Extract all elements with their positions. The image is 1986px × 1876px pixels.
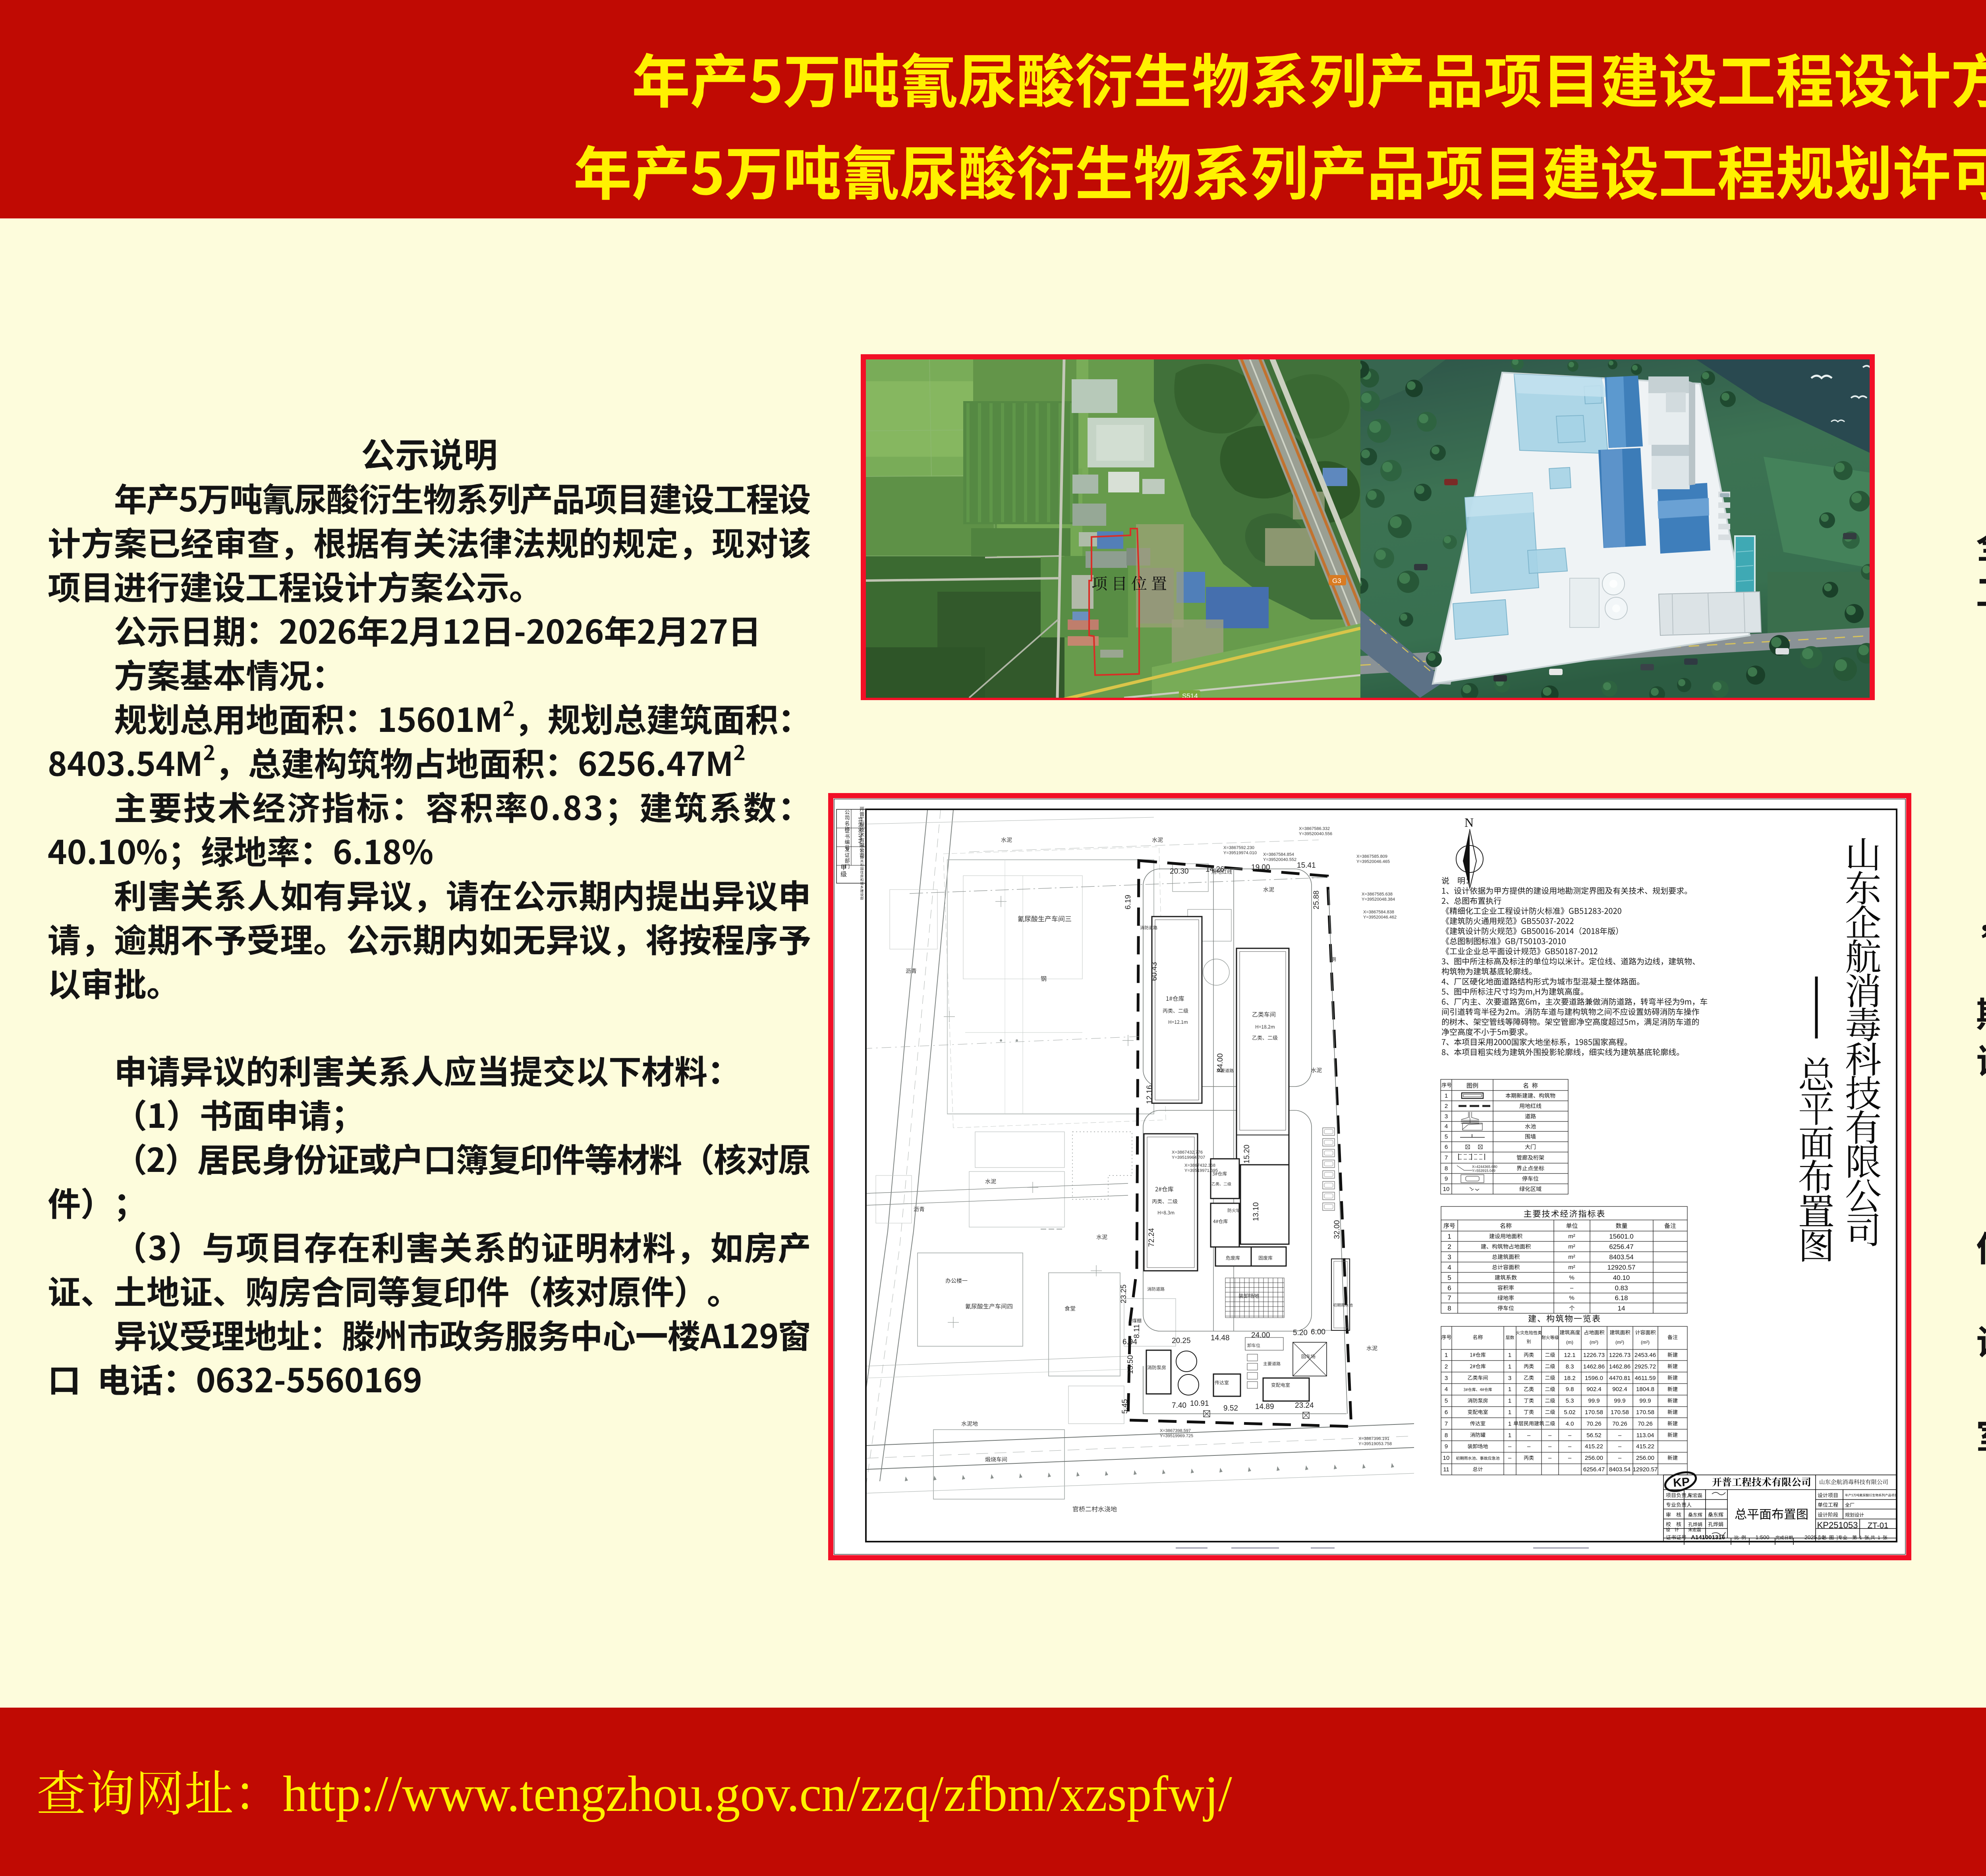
svg-text:8: 8 [1445, 1165, 1448, 1172]
svg-text:1: 1 [1508, 1421, 1511, 1427]
svg-text:Y=39520046.465: Y=39520046.465 [1356, 859, 1390, 864]
svg-text:–: – [1618, 1443, 1622, 1450]
svg-text:8: 8 [1447, 1305, 1451, 1312]
svg-text:–: – [1568, 1432, 1572, 1439]
svg-text:12920.57: 12920.57 [1633, 1466, 1658, 1473]
svg-text:5: 5 [1445, 1133, 1448, 1140]
svg-text:10.91: 10.91 [1190, 1399, 1209, 1408]
svg-text:%: % [1569, 1295, 1574, 1301]
svg-text:Y=39519971.695: Y=39519971.695 [1184, 1168, 1218, 1173]
svg-text:8.3: 8.3 [1566, 1363, 1574, 1370]
svg-text:3: 3 [1508, 1375, 1511, 1382]
svg-text:6256.47: 6256.47 [1583, 1466, 1605, 1473]
svg-text:–: – [1548, 1432, 1552, 1439]
svg-text:14: 14 [1618, 1305, 1625, 1312]
svg-text:Y=39519053.758: Y=39519053.758 [1358, 1442, 1392, 1446]
svg-text:6: 6 [1445, 1409, 1448, 1416]
svg-text:G3: G3 [1332, 577, 1341, 585]
svg-text:2: 2 [1447, 1243, 1451, 1251]
svg-text:m²: m² [1568, 1243, 1575, 1250]
svg-text:6256.47: 6256.47 [1609, 1243, 1633, 1251]
svg-text:6: 6 [1447, 1284, 1451, 1292]
svg-text:X=3867592.230: X=3867592.230 [1223, 845, 1254, 850]
svg-text:4: 4 [1445, 1386, 1448, 1393]
svg-text:6.00: 6.00 [1311, 1328, 1325, 1336]
svg-text:15.41: 15.41 [1297, 861, 1316, 870]
svg-text:–: – [1618, 1455, 1622, 1461]
svg-text:X=3867584.838: X=3867584.838 [1363, 910, 1394, 915]
svg-text:113.04: 113.04 [1636, 1432, 1654, 1439]
svg-text:9.52: 9.52 [1223, 1404, 1238, 1413]
svg-text:–: – [1548, 1455, 1552, 1461]
svg-text:5.45: 5.45 [1121, 1399, 1129, 1414]
svg-text:60.43: 60.43 [1150, 962, 1159, 981]
svg-text:1: 1 [1445, 1352, 1448, 1359]
svg-text:12920.57: 12920.57 [1607, 1264, 1636, 1271]
svg-text:2: 2 [1445, 1103, 1448, 1110]
svg-text:70.26: 70.26 [1638, 1421, 1653, 1427]
svg-text:2453.46: 2453.46 [1634, 1352, 1656, 1359]
svg-text:Y=39520048.384: Y=39520048.384 [1362, 897, 1395, 902]
svg-text:8403.54: 8403.54 [1609, 1253, 1633, 1261]
svg-text:11: 11 [1443, 1466, 1449, 1473]
svg-text:2: 2 [1445, 1363, 1448, 1370]
svg-text:7: 7 [1445, 1421, 1448, 1427]
svg-text:170.58: 170.58 [1636, 1409, 1654, 1416]
svg-text:1226.73: 1226.73 [1609, 1352, 1631, 1359]
svg-text:13.10: 13.10 [1252, 1202, 1260, 1221]
svg-text:20.25: 20.25 [1172, 1337, 1191, 1345]
svg-text:m²: m² [1568, 1233, 1575, 1240]
svg-text:902.4: 902.4 [1586, 1386, 1602, 1393]
svg-text:3: 3 [1447, 1253, 1451, 1261]
svg-text:5.3: 5.3 [1566, 1397, 1574, 1404]
svg-text:99.9: 99.9 [1588, 1397, 1600, 1404]
svg-text:Y=39519969.725: Y=39519969.725 [1160, 1434, 1193, 1438]
svg-text:70.26: 70.26 [1612, 1421, 1627, 1427]
svg-text:5: 5 [1445, 1397, 1448, 1404]
svg-text:5: 5 [1447, 1274, 1451, 1282]
svg-text:256.00: 256.00 [1585, 1455, 1603, 1461]
svg-text:1462.86: 1462.86 [1583, 1363, 1605, 1370]
svg-text:–: – [1618, 1432, 1622, 1439]
svg-text:6.19: 6.19 [1124, 895, 1132, 909]
svg-text:170.58: 170.58 [1585, 1409, 1603, 1416]
svg-text:15601.0: 15601.0 [1609, 1233, 1633, 1240]
svg-text:KP: KP [1673, 1475, 1690, 1490]
svg-text:m²: m² [1568, 1254, 1575, 1260]
svg-text:Y=39520046.462: Y=39520046.462 [1363, 915, 1397, 920]
svg-text:5.02: 5.02 [1564, 1409, 1575, 1416]
svg-text:56.52: 56.52 [1586, 1432, 1602, 1439]
svg-text:8403.54: 8403.54 [1609, 1466, 1631, 1473]
svg-text:23.25: 23.25 [1120, 1284, 1128, 1303]
svg-text:–: – [1508, 1443, 1512, 1450]
svg-text:X=3867432.368: X=3867432.368 [1184, 1163, 1215, 1168]
svg-text:14.48: 14.48 [1211, 1334, 1230, 1342]
svg-text:X=3867585.809: X=3867585.809 [1356, 854, 1387, 859]
svg-text:9: 9 [1445, 1443, 1448, 1450]
svg-text:–: – [1568, 1443, 1572, 1450]
svg-text:8.11: 8.11 [1133, 1324, 1141, 1338]
svg-text:3: 3 [1445, 1375, 1448, 1382]
svg-text:–: – [1527, 1443, 1531, 1450]
svg-text:1: 1 [1508, 1386, 1511, 1393]
svg-text:X=3867584.854: X=3867584.854 [1263, 852, 1294, 857]
svg-text:0.83: 0.83 [1615, 1284, 1628, 1292]
svg-text:Y=39519974.010: Y=39519974.010 [1223, 851, 1257, 855]
svg-text:9: 9 [1445, 1175, 1448, 1182]
svg-text:18.2: 18.2 [1564, 1375, 1575, 1382]
svg-text:256.00: 256.00 [1636, 1455, 1654, 1461]
svg-text:–: – [1527, 1432, 1531, 1439]
svg-text:4611.59: 4611.59 [1634, 1375, 1656, 1382]
svg-text:Y=39520040.552: Y=39520040.552 [1263, 857, 1296, 862]
svg-text:2025.10: 2025.10 [1804, 1534, 1825, 1540]
svg-text:–: – [1570, 1285, 1574, 1291]
svg-text:12.1: 12.1 [1564, 1352, 1575, 1359]
svg-text:72.24: 72.24 [1148, 1228, 1156, 1247]
svg-text:X=3867432.776: X=3867432.776 [1172, 1150, 1203, 1155]
svg-text:99.9: 99.9 [1639, 1397, 1651, 1404]
svg-text:Y=39520040.556: Y=39520040.556 [1299, 832, 1332, 836]
svg-text:14.89: 14.89 [1255, 1403, 1274, 1411]
svg-text:A141001316: A141001316 [1691, 1534, 1725, 1541]
svg-text:10: 10 [1443, 1455, 1450, 1461]
svg-text:1: 1 [1508, 1352, 1511, 1359]
svg-text:4: 4 [1447, 1264, 1451, 1271]
svg-text:1462.86: 1462.86 [1609, 1363, 1631, 1370]
svg-text:1804.8: 1804.8 [1636, 1386, 1654, 1393]
svg-text:7.40: 7.40 [1172, 1401, 1186, 1410]
svg-text:Y=553915.049: Y=553915.049 [1472, 1169, 1495, 1173]
svg-text:32.00: 32.00 [1333, 1220, 1341, 1239]
svg-text:%: % [1569, 1274, 1574, 1281]
svg-text:9.8: 9.8 [1566, 1386, 1574, 1393]
svg-text:1: 1 [1447, 1233, 1451, 1240]
svg-text:1: 1 [1508, 1397, 1511, 1404]
svg-text:170.58: 170.58 [1611, 1409, 1629, 1416]
svg-text:(m²): (m²) [1641, 1339, 1650, 1345]
svg-text:902.4: 902.4 [1612, 1386, 1627, 1393]
svg-text:19.00: 19.00 [1251, 863, 1270, 872]
svg-text:(m²): (m²) [1590, 1339, 1598, 1345]
svg-text:13.50: 13.50 [1126, 1355, 1135, 1374]
svg-text:415.22: 415.22 [1636, 1443, 1654, 1450]
svg-text:99.9: 99.9 [1614, 1397, 1625, 1404]
svg-text:4.0: 4.0 [1566, 1421, 1574, 1427]
svg-text:–: – [1508, 1455, 1512, 1461]
svg-text:1: 1 [1508, 1409, 1511, 1416]
svg-text:KP251053: KP251053 [1817, 1520, 1858, 1530]
svg-text:6: 6 [1445, 1144, 1448, 1150]
svg-text:1: 1 [1508, 1363, 1511, 1370]
svg-text:(m): (m) [1566, 1339, 1573, 1345]
svg-text:ZT-01: ZT-01 [1868, 1521, 1888, 1530]
svg-text:7: 7 [1447, 1294, 1451, 1302]
svg-text:3: 3 [1445, 1113, 1448, 1120]
svg-text:70.26: 70.26 [1586, 1421, 1602, 1427]
svg-text:20.30: 20.30 [1170, 867, 1189, 876]
svg-text:X=3867585.638: X=3867585.638 [1362, 892, 1393, 897]
svg-text:10: 10 [1443, 1186, 1450, 1193]
svg-text:14.26: 14.26 [1206, 865, 1225, 874]
svg-text:25.88: 25.88 [1312, 890, 1321, 909]
svg-text:1: 1 [1508, 1432, 1511, 1439]
svg-text:A141001316: A141001316 [858, 817, 863, 844]
svg-text:15.20: 15.20 [1243, 1145, 1251, 1164]
svg-text:1226.73: 1226.73 [1583, 1352, 1605, 1359]
svg-text:12.16: 12.16 [1146, 1085, 1154, 1104]
svg-text:–: – [1568, 1455, 1572, 1461]
svg-text:6.18: 6.18 [1615, 1294, 1628, 1302]
svg-text:84.00: 84.00 [1216, 1053, 1225, 1072]
svg-text:24.00: 24.00 [1251, 1331, 1270, 1339]
svg-text:23.24: 23.24 [1295, 1401, 1314, 1410]
svg-text:1: 1 [1445, 1092, 1448, 1099]
svg-text:4: 4 [1445, 1123, 1448, 1130]
svg-text:X=3867586.332: X=3867586.332 [1299, 826, 1330, 831]
svg-text:415.22: 415.22 [1585, 1443, 1603, 1450]
svg-text:m²: m² [1568, 1264, 1575, 1271]
svg-text:http://www.tengzhou.gov.cn/zzq: http://www.tengzhou.gov.cn/zzq/zfbm/xzsp… [283, 1766, 1232, 1822]
svg-text:1:500: 1:500 [1755, 1534, 1769, 1540]
svg-text:X=3867396.191: X=3867396.191 [1358, 1436, 1389, 1441]
svg-text:1596.0: 1596.0 [1585, 1375, 1603, 1382]
svg-text:X=4244365.680: X=4244365.680 [1472, 1165, 1497, 1169]
svg-text:7: 7 [1445, 1154, 1448, 1161]
svg-text:40.10: 40.10 [1613, 1274, 1630, 1282]
svg-text:4470.81: 4470.81 [1609, 1375, 1631, 1382]
svg-text:(m²): (m²) [1615, 1339, 1624, 1345]
svg-text:Y=39519964.707: Y=39519964.707 [1172, 1155, 1205, 1160]
svg-text:X=3867398.597: X=3867398.597 [1160, 1428, 1191, 1433]
svg-text:N: N [1464, 815, 1474, 830]
svg-text:5.20: 5.20 [1293, 1329, 1308, 1337]
svg-text:2925.72: 2925.72 [1634, 1363, 1656, 1370]
svg-text:6.94: 6.94 [1122, 1338, 1137, 1346]
svg-text:8: 8 [1445, 1432, 1448, 1439]
svg-text:–: – [1548, 1443, 1552, 1450]
